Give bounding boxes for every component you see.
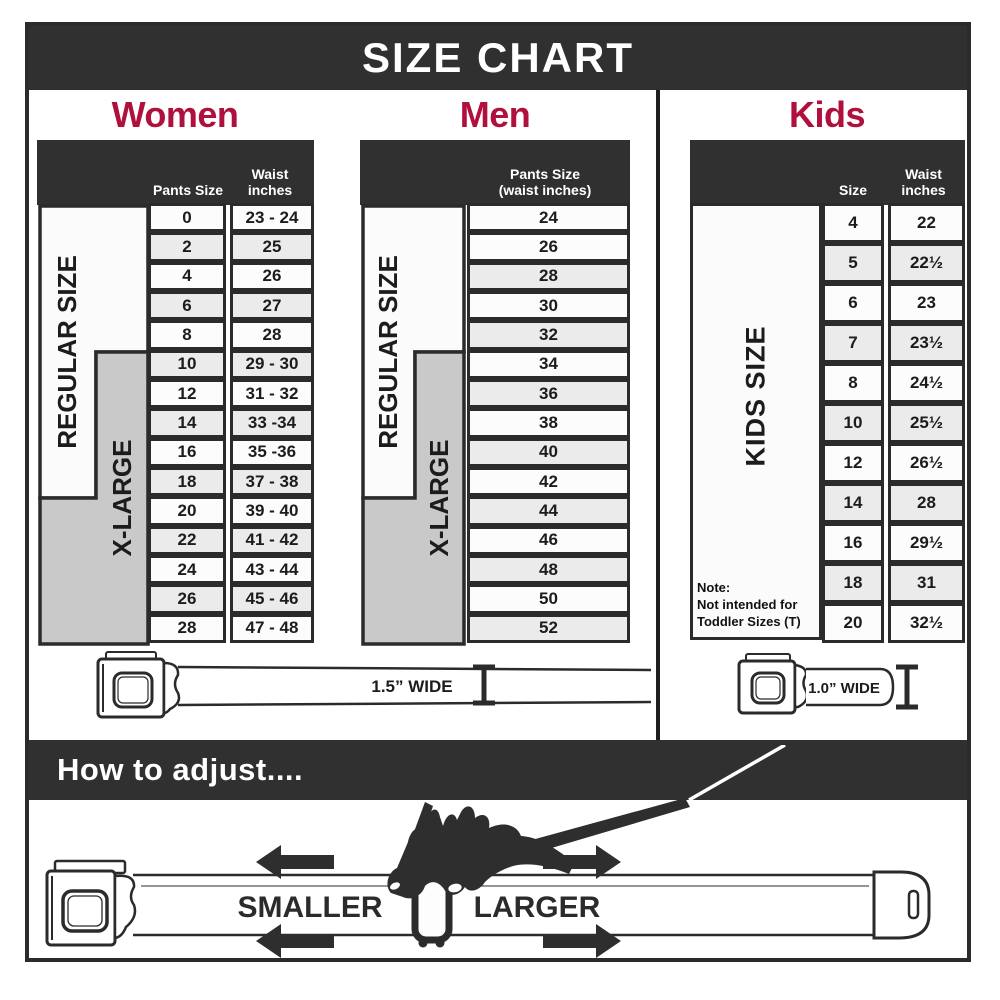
men-section-title: Men [395, 94, 595, 136]
waist-cell: 24½ [888, 363, 965, 403]
size-cell: 2 [148, 232, 226, 261]
waist-cell: 31 [888, 563, 965, 603]
women-regular-size-label: REGULAR SIZE [52, 255, 82, 449]
buckle-latch [115, 876, 135, 938]
table-row: 32 [467, 320, 630, 349]
kids-col-waist: Waist inches [884, 166, 963, 198]
table-row: 023 - 24 [148, 203, 314, 232]
waist-cell: 22½ [888, 243, 965, 283]
table-row: 1226½ [822, 443, 965, 483]
kids-col-size: Size [822, 182, 884, 198]
table-row: 1231 - 32 [148, 379, 314, 408]
waist-cell: 45 - 46 [230, 584, 314, 613]
width-measure-icon [896, 667, 918, 707]
men-xlarge-label: X-LARGE [424, 440, 454, 557]
table-row: 1433 -34 [148, 408, 314, 437]
table-row: 40 [467, 438, 630, 467]
size-cell: 12 [148, 379, 226, 408]
size-cell: 14 [148, 408, 226, 437]
waist-cell: 29½ [888, 523, 965, 563]
waist-cell: 24 [467, 203, 630, 232]
table-row: 422 [822, 203, 965, 243]
size-cell: 22 [148, 526, 226, 555]
arrow-left-icon [256, 924, 334, 958]
table-row: 52 [467, 614, 630, 643]
size-cell: 16 [148, 438, 226, 467]
table-row: 1629½ [822, 523, 965, 563]
kids-note-line2: Not intended for [697, 597, 801, 614]
waist-cell: 25 [230, 232, 314, 261]
table-row: 1831 [822, 563, 965, 603]
waist-cell: 23 - 24 [230, 203, 314, 232]
larger-label: LARGER [474, 891, 601, 924]
size-chart-graphic: SIZE CHART Women Men Kids Pants Size Wai… [0, 0, 1000, 1000]
waist-cell: 23½ [888, 323, 965, 363]
kids-col-waist-line1: Waist [884, 166, 963, 182]
waist-cell: 36 [467, 379, 630, 408]
table-row: 28 [467, 262, 630, 291]
waist-cell: 37 - 38 [230, 467, 314, 496]
waist-cell: 22 [888, 203, 965, 243]
table-row: 828 [148, 320, 314, 349]
size-cell: 28 [148, 614, 226, 643]
waist-cell: 38 [467, 408, 630, 437]
waist-cell: 50 [467, 584, 630, 613]
arrow-right-icon [543, 924, 621, 958]
waist-cell: 26 [467, 232, 630, 261]
adjuster-loop-right [436, 939, 445, 948]
size-cell: 12 [822, 443, 884, 483]
table-row: 1837 - 38 [148, 467, 314, 496]
kids-size-label: KIDS SIZE [741, 325, 772, 466]
table-row: 46 [467, 526, 630, 555]
size-cell: 10 [822, 403, 884, 443]
waist-cell: 29 - 30 [230, 350, 314, 379]
smaller-label: SMALLER [238, 891, 383, 924]
table-row: 34 [467, 350, 630, 379]
size-cell: 20 [148, 496, 226, 525]
table-row: 44 [467, 496, 630, 525]
table-row: 1025½ [822, 403, 965, 443]
size-cell: 4 [148, 262, 226, 291]
size-cell: 10 [148, 350, 226, 379]
belt-strap-bottom-line [178, 702, 651, 705]
waist-cell: 32 [467, 320, 630, 349]
table-row: 2039 - 40 [148, 496, 314, 525]
women-size-table: 023 - 24 225 426 627 828 1029 - 30 1231 … [148, 203, 314, 643]
size-cell: 18 [148, 467, 226, 496]
table-row: 627 [148, 291, 314, 320]
men-table-header: Pants Size (waist inches) [360, 140, 630, 205]
pulled-strap-over-bar [689, 745, 785, 800]
seatbelt-buckle-icon [98, 652, 179, 717]
size-cell: 7 [822, 323, 884, 363]
waist-cell: 42 [467, 467, 630, 496]
table-row: 26 [467, 232, 630, 261]
men-col-line1: Pants Size [465, 166, 625, 182]
waist-cell: 35 -36 [230, 438, 314, 467]
table-row: 36 [467, 379, 630, 408]
men-col-line2: (waist inches) [465, 182, 625, 198]
size-cell: 18 [822, 563, 884, 603]
women-table-header: Pants Size Waist inches [37, 140, 314, 205]
adult-belt-width-label: 1.5” WIDE [371, 677, 452, 696]
table-row: 2032½ [822, 603, 965, 643]
size-cell: 14 [822, 483, 884, 523]
kids-note-line1: Note: [697, 580, 801, 597]
waist-cell: 39 - 40 [230, 496, 314, 525]
belt-tip [874, 872, 929, 938]
adjuster-loop-left [419, 939, 428, 948]
women-size-range-labels: REGULAR SIZE X-LARGE [37, 203, 150, 647]
table-row: 38 [467, 408, 630, 437]
waist-cell: 26½ [888, 443, 965, 483]
width-measure-icon [473, 667, 495, 703]
buckle-latch [795, 665, 807, 707]
size-cell: 24 [148, 555, 226, 584]
table-row: 2443 - 44 [148, 555, 314, 584]
waist-cell: 34 [467, 350, 630, 379]
table-row: 426 [148, 262, 314, 291]
kids-belt-width-label: 1.0” WIDE [808, 680, 880, 697]
size-cell: 6 [822, 283, 884, 323]
size-cell: 0 [148, 203, 226, 232]
table-row: 42 [467, 467, 630, 496]
waist-cell: 23 [888, 283, 965, 323]
table-row: 48 [467, 555, 630, 584]
men-size-range-labels: REGULAR SIZE X-LARGE [360, 203, 467, 647]
size-cell: 20 [822, 603, 884, 643]
waist-cell: 52 [467, 614, 630, 643]
kids-note: Note: Not intended for Toddler Sizes (T) [697, 580, 801, 631]
women-xlarge-label: X-LARGE [107, 440, 137, 557]
table-row: 2847 - 48 [148, 614, 314, 643]
table-row: 2241 - 42 [148, 526, 314, 555]
kids-col-waist-line2: inches [884, 182, 963, 198]
kids-section-title: Kids [727, 94, 927, 136]
waist-cell: 28 [467, 262, 630, 291]
table-row: 50 [467, 584, 630, 613]
waist-cell: 40 [467, 438, 630, 467]
page-title: SIZE CHART [362, 34, 634, 82]
table-row: 1635 -36 [148, 438, 314, 467]
waist-cell: 33 -34 [230, 408, 314, 437]
waist-cell: 28 [888, 483, 965, 523]
table-row: 723½ [822, 323, 965, 363]
table-row: 824½ [822, 363, 965, 403]
table-row: 30 [467, 291, 630, 320]
table-row: 522½ [822, 243, 965, 283]
buckle-button [63, 891, 107, 931]
size-cell: 5 [822, 243, 884, 283]
waist-cell: 25½ [888, 403, 965, 443]
men-size-table: 24 26 28 30 32 34 36 38 40 42 44 46 48 5… [467, 203, 630, 643]
title-bar: SIZE CHART [29, 26, 967, 90]
belt-strap-top-line [178, 667, 651, 670]
size-cell: 16 [822, 523, 884, 563]
table-row: 2645 - 46 [148, 584, 314, 613]
waist-cell: 46 [467, 526, 630, 555]
kids-size-band: KIDS SIZE Note: Not intended for Toddler… [690, 203, 822, 640]
size-cell: 26 [148, 584, 226, 613]
adult-belt-illustration: 1.5” WIDE [29, 645, 657, 740]
waist-cell: 30 [467, 291, 630, 320]
kids-note-line3: Toddler Sizes (T) [697, 614, 801, 631]
table-row: 1029 - 30 [148, 350, 314, 379]
women-col-waist: Waist inches [228, 166, 312, 198]
waist-cell: 43 - 44 [230, 555, 314, 584]
size-cell: 8 [822, 363, 884, 403]
men-regular-size-label: REGULAR SIZE [373, 255, 403, 449]
panel-divider [656, 90, 660, 740]
women-section-title: Women [75, 94, 275, 136]
buckle-latch [164, 663, 179, 713]
waist-cell: 48 [467, 555, 630, 584]
size-cell: 8 [148, 320, 226, 349]
size-cell: 4 [822, 203, 884, 243]
kids-size-table: 422 522½ 623 723½ 824½ 1025½ 1226½ 1428 … [822, 203, 965, 643]
waist-cell: 44 [467, 496, 630, 525]
waist-cell: 28 [230, 320, 314, 349]
waist-cell: 47 - 48 [230, 614, 314, 643]
hand-silhouette [387, 806, 575, 898]
table-row: 1428 [822, 483, 965, 523]
waist-cell: 27 [230, 291, 314, 320]
waist-cell: 41 - 42 [230, 526, 314, 555]
kids-belt-illustration: 1.0” WIDE [660, 645, 967, 740]
belt-tip-slot [909, 891, 918, 918]
seatbelt-buckle-icon [47, 861, 135, 945]
table-row: 225 [148, 232, 314, 261]
waist-cell: 26 [230, 262, 314, 291]
table-row: 623 [822, 283, 965, 323]
seatbelt-buckle-icon [739, 654, 807, 713]
size-cell: 6 [148, 291, 226, 320]
men-col-pants-size: Pants Size (waist inches) [465, 166, 625, 198]
waist-cell: 31 - 32 [230, 379, 314, 408]
waist-cell: 32½ [888, 603, 965, 643]
hand-icon [387, 802, 575, 898]
women-col-waist-line1: Waist [228, 166, 312, 182]
women-col-waist-line2: inches [228, 182, 312, 198]
belt-tip-outline [874, 872, 929, 938]
table-row: 24 [467, 203, 630, 232]
adjust-illustration: SMALLER LARGER [29, 745, 967, 958]
kids-table-header: Size Waist inches [690, 140, 965, 205]
women-col-pants-size: Pants Size [148, 182, 228, 198]
